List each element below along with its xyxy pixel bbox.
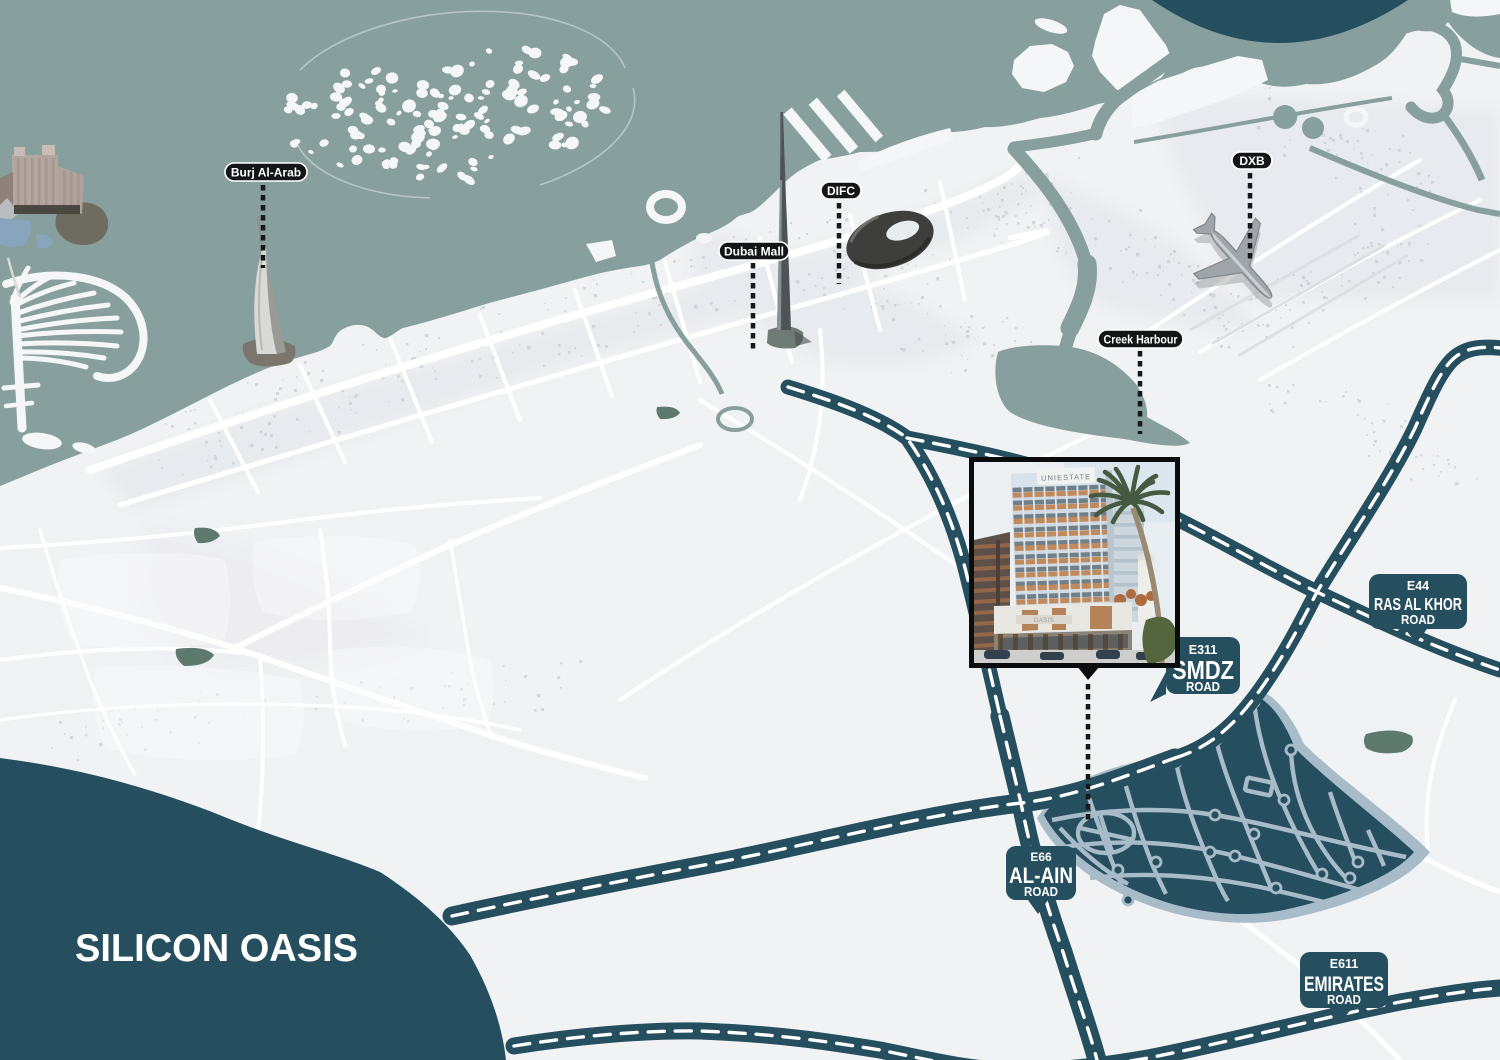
svg-text:RAS AL KHOR: RAS AL KHOR bbox=[1374, 594, 1462, 614]
svg-text:Creek Harbour: Creek Harbour bbox=[1104, 332, 1178, 346]
svg-text:SILICON OASIS: SILICON OASIS bbox=[75, 927, 358, 970]
svg-text:ROAD: ROAD bbox=[1327, 993, 1361, 1007]
svg-text:ROAD: ROAD bbox=[1401, 613, 1435, 627]
svg-text:OASIS: OASIS bbox=[1034, 618, 1055, 624]
svg-text:DXB: DXB bbox=[1239, 154, 1265, 168]
svg-text:ROAD: ROAD bbox=[1186, 680, 1220, 694]
svg-text:E611: E611 bbox=[1330, 957, 1359, 971]
svg-text:DIFC: DIFC bbox=[827, 184, 855, 198]
svg-text:E44: E44 bbox=[1407, 579, 1429, 593]
svg-text:ROAD: ROAD bbox=[1024, 885, 1058, 899]
svg-text:Dubai Mall: Dubai Mall bbox=[724, 244, 784, 258]
svg-text:UNIESTATE: UNIESTATE bbox=[1041, 472, 1091, 483]
svg-text:Burj Al-Arab: Burj Al-Arab bbox=[231, 165, 301, 179]
svg-text:E66: E66 bbox=[1030, 850, 1052, 864]
